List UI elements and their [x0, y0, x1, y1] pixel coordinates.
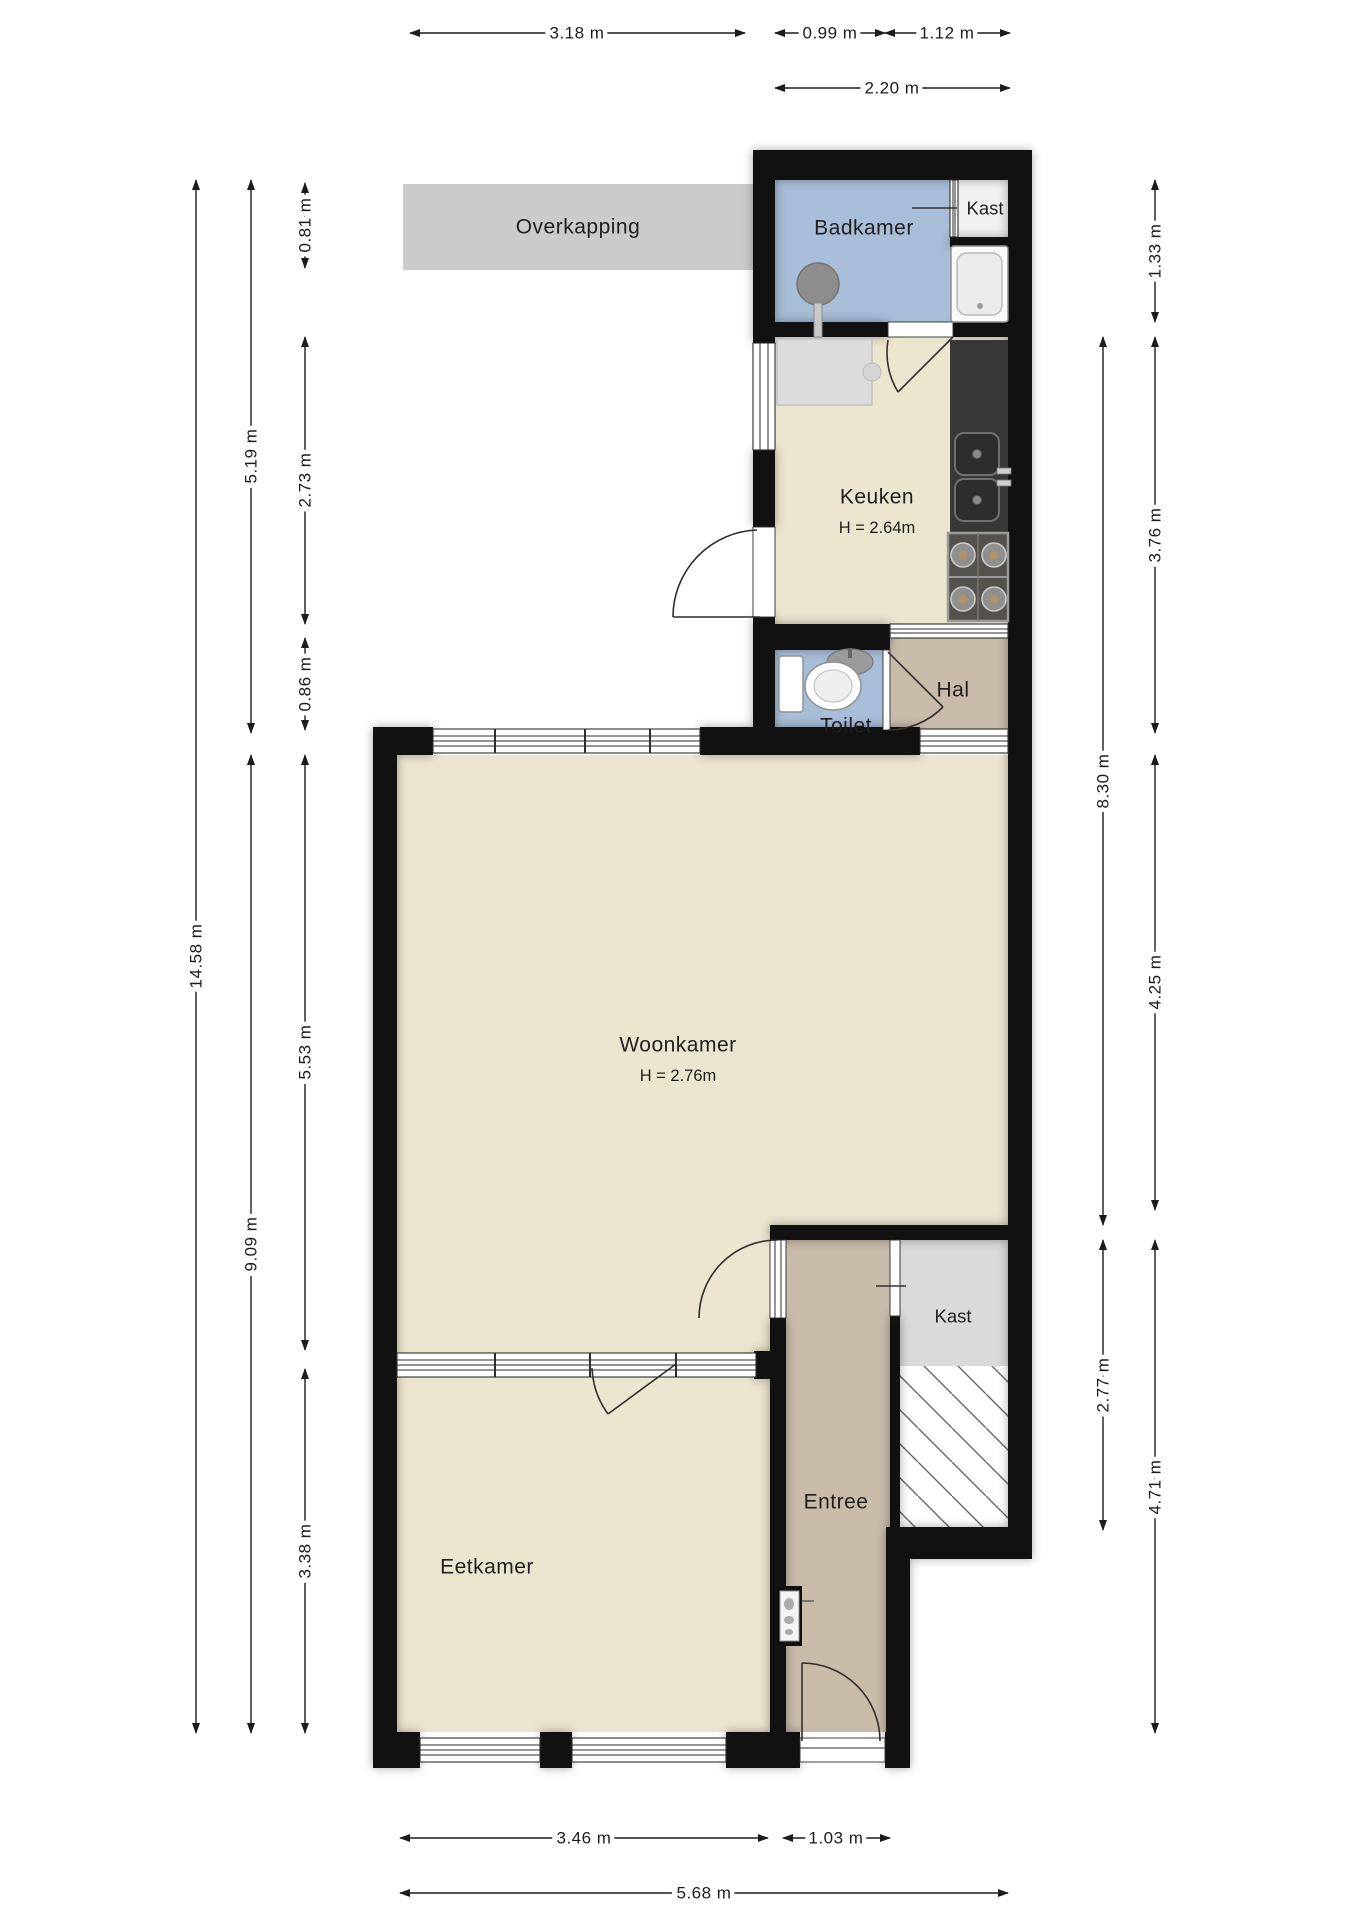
- overkapping-label: Overkapping: [516, 216, 641, 239]
- dim-label-1-12: 1.12 m: [920, 24, 975, 43]
- wall-woonkamer-top-b: [700, 727, 920, 755]
- dim-label-1-03: 1.03 m: [809, 1829, 864, 1848]
- meter-dial-1: [784, 1598, 794, 1610]
- dim-label-2-20: 2.20 m: [865, 79, 920, 98]
- toilet-label: Toilet: [820, 715, 872, 738]
- dim-label-3-38: 3.38 m: [296, 1524, 315, 1579]
- dim-label-8-30: 8.30 m: [1094, 754, 1113, 809]
- shower-stem-icon: [814, 303, 822, 337]
- meter-dial-3: [785, 1629, 793, 1635]
- dim-label-3-46: 3.46 m: [557, 1829, 612, 1848]
- entree-label: Entree: [804, 1491, 869, 1514]
- wall-entree-top: [770, 1225, 1008, 1240]
- door-entree-woonkamer: [770, 1240, 786, 1318]
- door-opening-front: [800, 1738, 885, 1762]
- wall-bottom-c: [726, 1732, 800, 1768]
- door-opening-keuken: [753, 527, 775, 617]
- dim-label-2-73: 2.73 m: [296, 453, 315, 508]
- wall-col-left-2: [753, 450, 775, 527]
- dim-label-0-86: 0.86 m: [296, 657, 315, 712]
- window-hal-top: [890, 624, 1008, 638]
- dim-label-9-09: 9.09 m: [242, 1217, 261, 1272]
- wall-keuken-toilet: [753, 624, 890, 650]
- door-opening-toilet: [883, 650, 890, 730]
- wall-bottom-d: [885, 1732, 910, 1768]
- dim-label-0-99: 0.99 m: [803, 24, 858, 43]
- kast-entree-label: Kast: [934, 1306, 971, 1327]
- dim-label-3-76: 3.76 m: [1146, 508, 1165, 563]
- faucet-icon-a: [997, 468, 1011, 474]
- shower-head-icon: [797, 263, 839, 305]
- dim-label-3-18: 3.18 m: [550, 24, 605, 43]
- dim-label-4-71: 4.71 m: [1146, 1460, 1165, 1515]
- dim-label-2-77: 2.77 m: [1094, 1358, 1113, 1413]
- kast-entree-floor: [900, 1240, 1008, 1366]
- dim-label-5-53: 5.53 m: [296, 1025, 315, 1080]
- wall-entree-left: [770, 1318, 786, 1768]
- dim-label-14-58: 14.58 m: [187, 924, 206, 989]
- wall-divider-end: [754, 1351, 786, 1379]
- woonkamer-label: Woonkamer: [619, 1034, 736, 1057]
- door-kast-entree: [890, 1240, 900, 1316]
- badkamer-label: Badkamer: [814, 217, 914, 240]
- faucet-icon-b: [997, 480, 1011, 486]
- bathtub-drain: [977, 303, 983, 309]
- sink-drain-1: [973, 450, 982, 459]
- dim-label-5-68: 5.68 m: [677, 1884, 732, 1903]
- wall-right: [1008, 150, 1032, 1559]
- washbasin-tap: [848, 648, 852, 658]
- eetkamer-floor: [397, 1375, 770, 1732]
- appliance-icon: [777, 339, 872, 405]
- door-opening-badkamer: [888, 322, 953, 337]
- kast-badkamer-label: Kast: [966, 198, 1003, 219]
- wall-bottom-a: [373, 1732, 420, 1768]
- door-arc-keuken: [673, 530, 757, 617]
- wall-col-left-1: [753, 150, 775, 343]
- meter-dial-2: [784, 1616, 794, 1624]
- dim-label-0-81: 0.81 m: [296, 198, 315, 253]
- hal-label: Hal: [936, 679, 969, 702]
- wall-left: [373, 727, 397, 1768]
- entree-floor: [786, 1240, 890, 1732]
- floorplan-svg: Overkapping Badkamer Kast Keuken H = 2.6…: [0, 0, 1358, 1920]
- sink-drain-2: [973, 496, 982, 505]
- wall-step: [886, 1527, 1032, 1559]
- window-keuken-left: [753, 343, 775, 450]
- appliance-knob: [863, 363, 881, 381]
- wall-kast-divider: [890, 1316, 900, 1530]
- wall-bottom-b: [540, 1732, 572, 1768]
- keuken-label: Keuken: [840, 486, 914, 509]
- wall-top: [753, 150, 1032, 180]
- eetkamer-label: Eetkamer: [440, 1556, 534, 1579]
- toilet-cistern: [779, 656, 803, 712]
- floors: [397, 180, 1008, 1732]
- dim-label-1-33: 1.33 m: [1146, 224, 1165, 279]
- woonkamer-height-label: H = 2.76m: [640, 1067, 717, 1085]
- dim-label-5-19: 5.19 m: [242, 429, 261, 484]
- floorplan-page: Overkapping Badkamer Kast Keuken H = 2.6…: [0, 0, 1358, 1920]
- toilet-bowl-inner: [814, 670, 852, 702]
- stairs-hatch-area: [900, 1366, 1008, 1527]
- dim-label-4-25: 4.25 m: [1146, 955, 1165, 1010]
- keuken-height-label: H = 2.64m: [839, 519, 916, 537]
- wall-badkamer-keuken-b: [953, 322, 1008, 337]
